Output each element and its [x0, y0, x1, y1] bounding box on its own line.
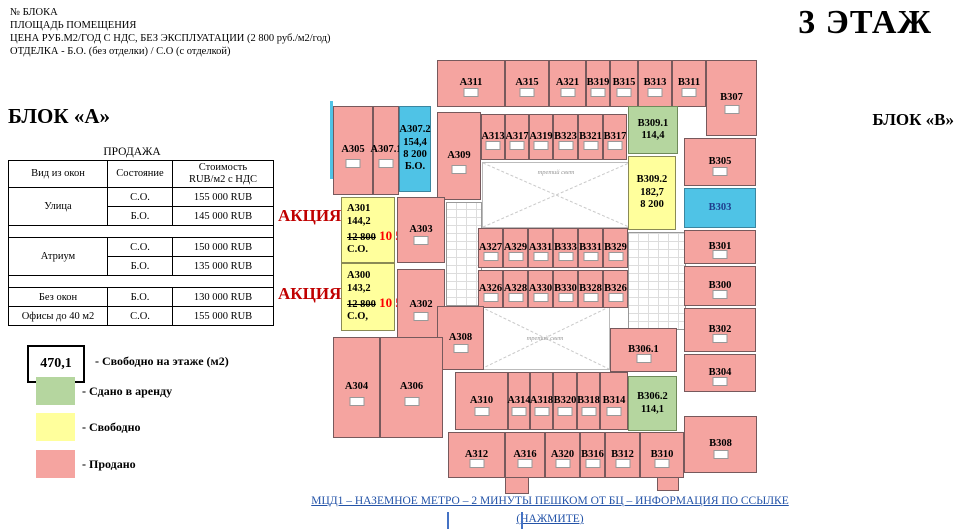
room-a308: А308: [437, 306, 484, 370]
room-b315: В315: [610, 60, 638, 107]
room-a315: А315: [505, 60, 549, 107]
room-b318: В318: [577, 372, 600, 430]
room-b331: В331: [578, 228, 603, 268]
room-a310: А310: [455, 372, 508, 430]
room-a320: А320: [545, 432, 580, 478]
room-a321: А321: [549, 60, 586, 107]
footer: МЦД1 – НАЗЕМНОЕ МЕТРО – 2 МИНУТЫ ПЕШКОМ …: [290, 491, 810, 527]
room-b308: В308: [684, 416, 757, 473]
room-b306-2: В306.2114,1: [628, 376, 677, 431]
room-b333: В333: [553, 228, 578, 268]
room-a330: А330: [528, 270, 553, 308]
room-a327: А327: [478, 228, 503, 268]
room-b304: В304: [684, 354, 756, 392]
divider-tick: [447, 512, 449, 529]
room-b323: В323: [553, 114, 578, 160]
room-b310: В310: [640, 432, 684, 478]
room-a303: А303: [397, 197, 445, 263]
room-b311: В311: [672, 60, 706, 107]
room-b329: В329: [603, 228, 628, 268]
room-a311: А311: [437, 60, 505, 107]
room-b300: В300: [684, 266, 756, 306]
room-b309-1: В309.1114,4: [628, 106, 678, 154]
room-b307: В307: [706, 60, 757, 136]
room-a306: А306: [380, 337, 443, 438]
room-b302: В302: [684, 308, 756, 352]
room-b320: В320: [553, 372, 577, 430]
room-b326: В326: [603, 270, 628, 308]
room-a316: А316: [505, 432, 545, 478]
room-a319: А319: [529, 114, 553, 160]
room-a328: А328: [503, 270, 528, 308]
service-core-a: [446, 202, 482, 306]
room-b321: В321: [578, 114, 603, 160]
atrium-upper: третий свет: [482, 162, 630, 228]
room-b316: В316: [580, 432, 605, 478]
room-b313: В313: [638, 60, 672, 107]
room-b330: В330: [553, 270, 578, 308]
room-a326: А326: [478, 270, 503, 308]
room-a305: А305: [333, 106, 373, 195]
room-a314: А314: [508, 372, 530, 430]
room-b306-1: В306.1: [610, 328, 677, 372]
room-a301: А301144,212 800 10 500С.О.: [341, 197, 395, 263]
floor-plan: третий свет третий свет А311А315А321В319…: [0, 0, 962, 531]
room-b312: В312: [605, 432, 640, 478]
room-a318: А318: [530, 372, 553, 430]
room-a304: А304: [333, 337, 380, 438]
room-b303: В303: [684, 188, 756, 228]
room-b317: В317: [603, 114, 627, 160]
room-a307-1: А307.1: [373, 106, 399, 195]
room-a331: А331: [528, 228, 553, 268]
room-a309: А309: [437, 112, 481, 200]
service-core-b: [628, 232, 686, 330]
room-b301: В301: [684, 230, 756, 264]
room-a317: А317: [505, 114, 529, 160]
room-a329: А329: [503, 228, 528, 268]
room-a307-2: А307.2154,48 200Б.О.: [399, 106, 431, 192]
atrium-lower: третий свет: [480, 306, 610, 370]
room-a312: А312: [448, 432, 505, 478]
room-b328: В328: [578, 270, 603, 308]
room-a300: А300143,212 800 10 500С.О,: [341, 263, 395, 331]
divider-tick: [521, 512, 523, 529]
room-b319: В319: [586, 60, 610, 107]
room-b309-2: В309.2182,78 200: [628, 156, 676, 230]
room-b305: В305: [684, 138, 756, 186]
metro-info-link[interactable]: МЦД1 – НАЗЕМНОЕ МЕТРО – 2 МИНУТЫ ПЕШКОМ …: [311, 495, 789, 525]
room-a313: А313: [481, 114, 505, 160]
atrium-label: третий свет: [481, 335, 609, 342]
atrium-label: третий свет: [483, 169, 629, 176]
room-b314: В314: [600, 372, 628, 430]
